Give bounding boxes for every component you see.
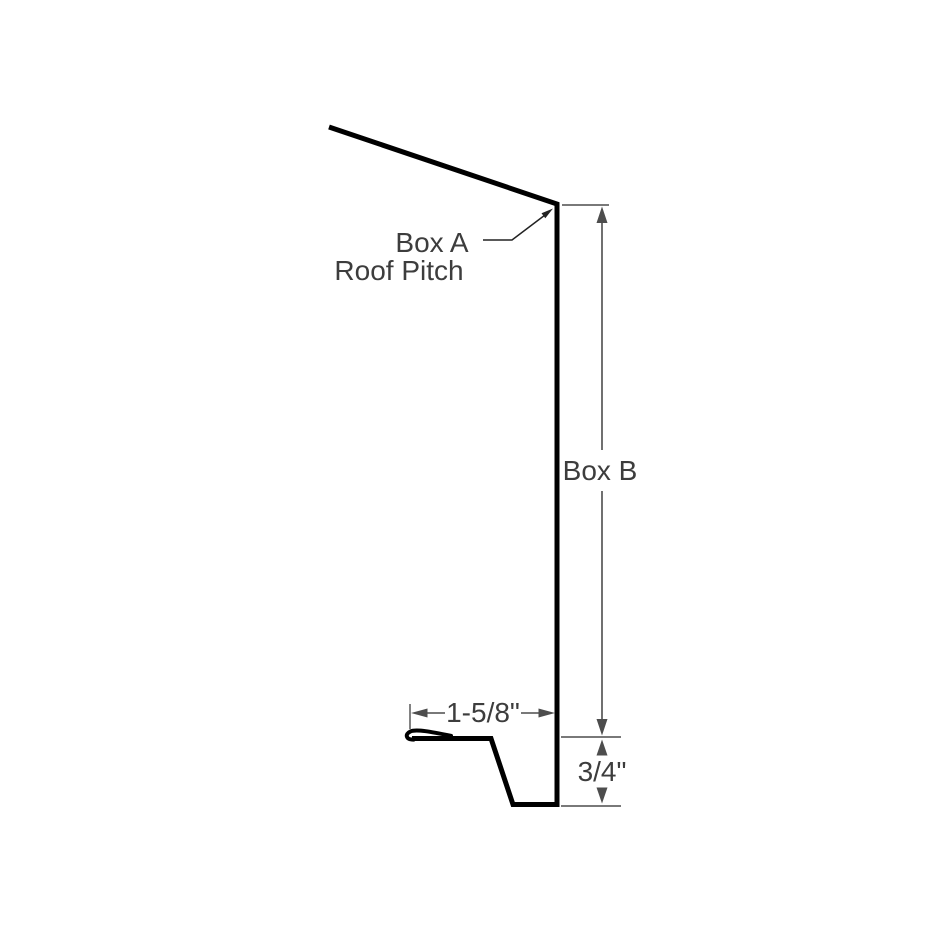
trim-profile-diagram: Box B 3/4" 1-5/8" Box A Roof Pitch <box>0 0 935 936</box>
diagram-svg: Box B 3/4" 1-5/8" Box A Roof Pitch <box>0 0 935 936</box>
kick-height-arrow-up-icon <box>597 740 608 756</box>
kick-height-value: 3/4" <box>578 756 627 787</box>
kick-height-arrow-down-icon <box>597 788 608 804</box>
callout-leader-line <box>483 214 547 241</box>
flange-width-arrow-right-icon <box>539 709 556 718</box>
callout-label-line2: Roof Pitch <box>334 255 463 286</box>
box-b-label: Box B <box>563 455 638 486</box>
callout-label-line1: Box A <box>395 227 468 258</box>
flange-width-value: 1-5/8" <box>446 697 520 728</box>
box-b-arrow-up-icon <box>597 207 608 224</box>
flange-width-arrow-left-icon <box>411 709 428 718</box>
box-b-arrow-down-icon <box>597 719 608 736</box>
